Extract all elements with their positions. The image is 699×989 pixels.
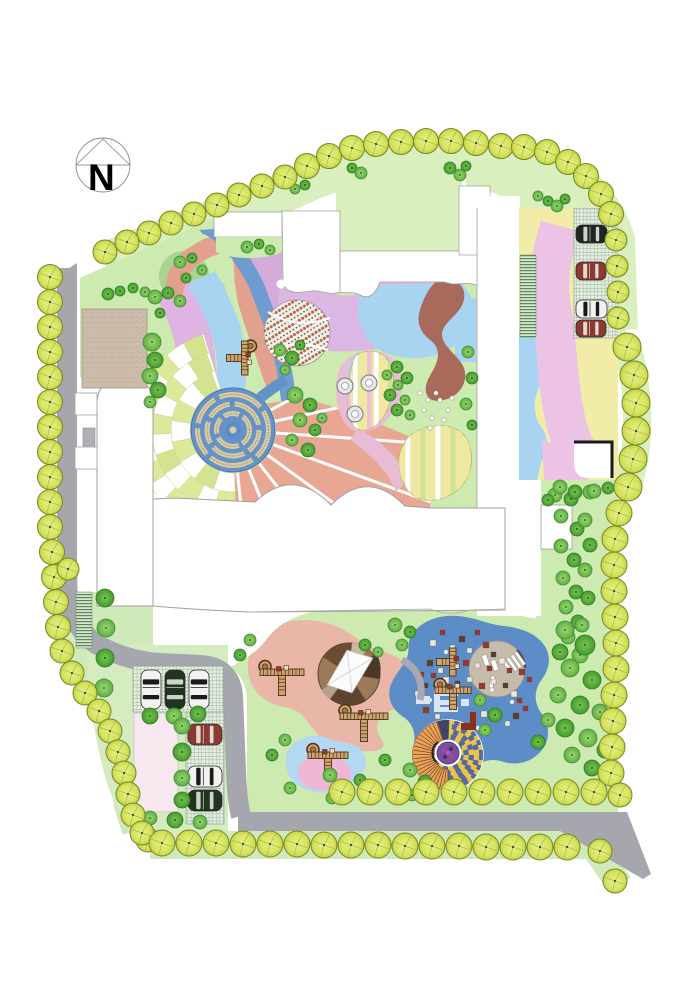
svg-text:N: N [88, 157, 115, 198]
